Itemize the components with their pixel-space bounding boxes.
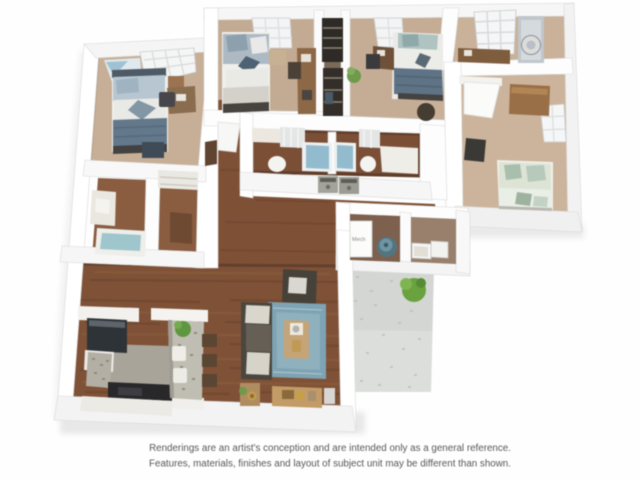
svg-text:Features, materials, finishes: Features, materials, finishes and layout… [149,459,511,470]
svg-text:Mech: Mech [352,237,365,243]
svg-text:Renderings are an artist's con: Renderings are an artist's conception an… [149,443,511,454]
